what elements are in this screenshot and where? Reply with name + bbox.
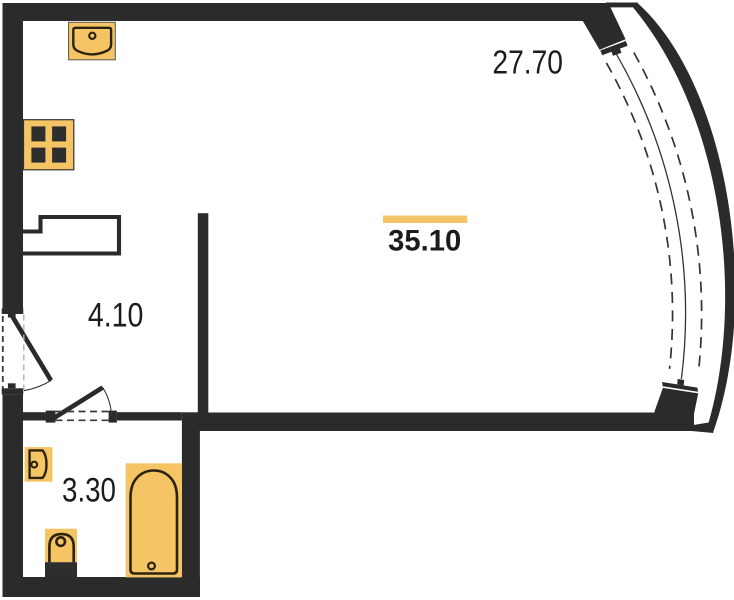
- svg-text:4.10: 4.10: [88, 296, 144, 334]
- svg-text:3.30: 3.30: [62, 471, 116, 509]
- svg-text:35.10: 35.10: [388, 226, 461, 258]
- svg-text:27.70: 27.70: [492, 43, 563, 81]
